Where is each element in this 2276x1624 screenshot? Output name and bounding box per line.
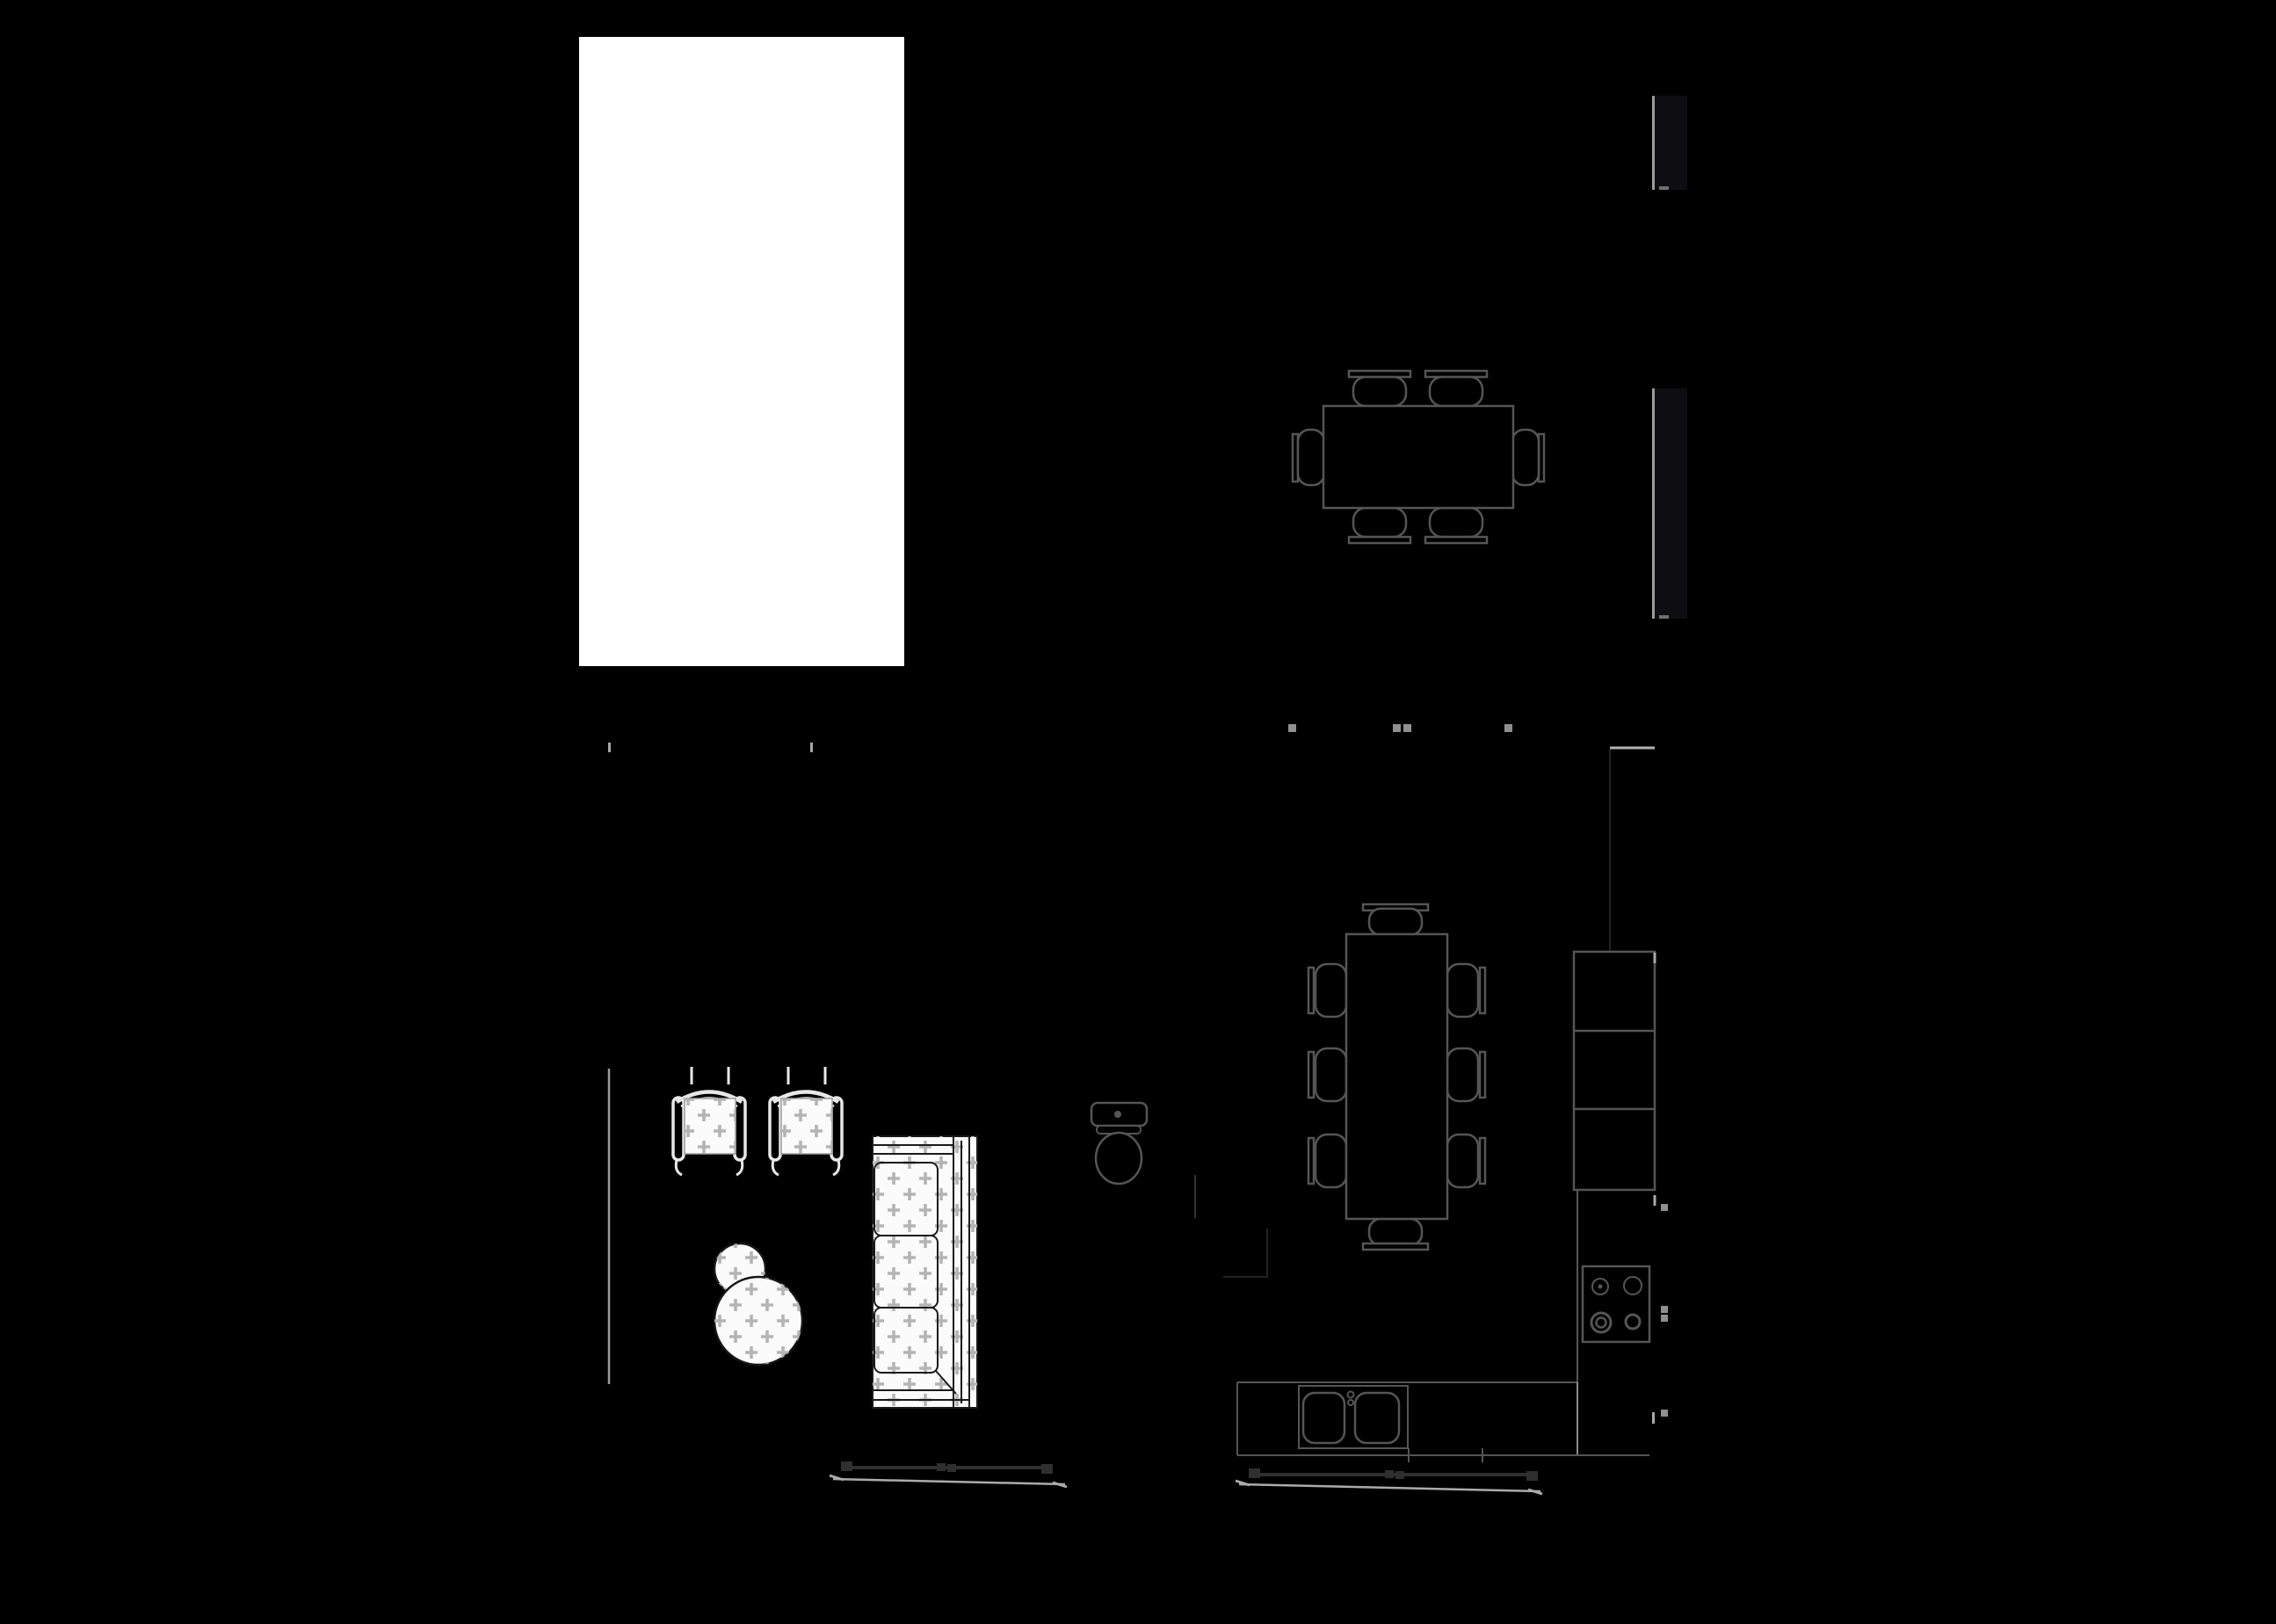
chair-back [1363,1243,1428,1250]
socket-mark [1661,1204,1668,1211]
toilet-bowl [1096,1133,1142,1184]
socket-mark [1661,1315,1668,1322]
chair-seat [1430,377,1482,406]
window-meet-cap [1385,1470,1394,1478]
chair-seat [1316,1048,1346,1101]
chair-seat [1447,1135,1478,1187]
window-end-cap [1249,1468,1260,1478]
glass-frame-line [1652,96,1655,190]
glass-door-mid[interactable] [1652,388,1687,619]
frame-tick [1659,615,1669,619]
glass-panel [1653,96,1687,190]
chair-cushion-pattern [685,1098,736,1154]
chair-seat [1298,430,1324,485]
window-end-cap [1526,1471,1538,1481]
chair-back [1480,968,1485,1013]
side-table-large[interactable] [714,1277,802,1365]
switch-tick-left [608,743,611,752]
socket-mark [1661,1410,1668,1417]
glass-door-top[interactable] [1652,96,1687,190]
table-top-pattern [714,1277,802,1365]
chair-seat [1369,909,1422,935]
chair-back [1349,537,1410,543]
socket-mark [1403,724,1411,732]
chair-seat [1316,964,1346,1017]
chair-seat [1353,377,1406,406]
dining-table-top [1323,406,1513,508]
chair-back [1480,1052,1485,1098]
chair-back [1425,537,1487,543]
dining-table-top [1346,934,1447,1219]
chair-seat [1512,430,1539,485]
switch-tick-kitchen [1652,1412,1655,1424]
glass-frame-line [1652,388,1655,619]
chair-seat [1430,508,1482,537]
window-meet-cap [947,1464,956,1472]
chair-back [1480,1138,1485,1184]
burner-dot [1598,1285,1603,1289]
chair-seat [1447,1048,1478,1101]
chair-seat [1369,1219,1422,1245]
floor-plan-drawing [0,0,2276,1624]
flush-button [1114,1111,1121,1118]
sofa[interactable] [873,1136,977,1408]
socket-mark [1661,1306,1668,1313]
upper-left-room [579,37,904,666]
window-meet-cap [1395,1471,1404,1479]
socket-mark [1504,724,1512,732]
toilet[interactable] [1091,1103,1147,1184]
switch-tick-right [810,743,813,752]
window-end-cap [841,1461,852,1471]
floor-plan-canvas [0,0,2276,1624]
chair-seat [1353,508,1406,537]
plan-background [0,0,2276,1624]
chair-back [1308,968,1314,1013]
window-line [846,1466,1047,1469]
chair-cushion-pattern [781,1098,832,1154]
glass-panel [1653,388,1687,619]
window-end-cap [1041,1464,1053,1474]
chair-seat [1316,1135,1346,1187]
chair-seat [1447,964,1478,1017]
socket-mark [1288,724,1296,732]
chair-back [1308,1052,1314,1098]
frame-tick [1659,186,1669,190]
window-meet-cap [937,1463,946,1471]
socket-mark [1393,724,1401,732]
chair-back [1308,1138,1314,1184]
